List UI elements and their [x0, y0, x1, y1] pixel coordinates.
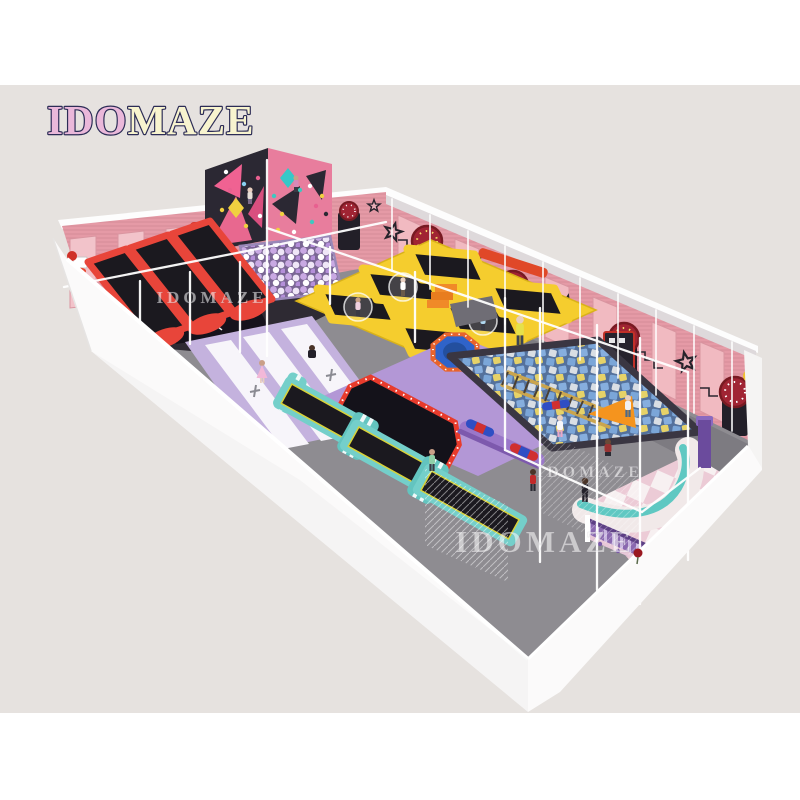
climber-figure — [293, 175, 298, 192]
purple-pillar — [696, 416, 713, 468]
climber-figure — [247, 187, 252, 204]
person — [308, 345, 316, 358]
logo-text: IDOMAZE — [47, 97, 254, 143]
logo-segment-pink: IDO — [47, 97, 127, 143]
trampoline-park-render: IDOMAZE IDOMAZE IDOMAZE IDOMAZE — [0, 0, 800, 800]
logo-segment-yellow: MAZE — [127, 97, 254, 143]
red-rose — [634, 549, 643, 558]
person — [605, 439, 612, 456]
watermark: IDOMAZE — [156, 288, 267, 307]
watermark: IDOMAZE — [537, 464, 643, 481]
bottom-white-band — [0, 713, 800, 800]
arch-doorway — [338, 202, 360, 250]
brand-logo: IDOMAZE — [47, 97, 254, 143]
top-white-band — [0, 0, 800, 85]
product-render-page: IDOMAZE IDOMAZE IDOMAZE IDOMAZE — [0, 0, 800, 800]
watermark: IDOMAZE — [455, 524, 635, 559]
